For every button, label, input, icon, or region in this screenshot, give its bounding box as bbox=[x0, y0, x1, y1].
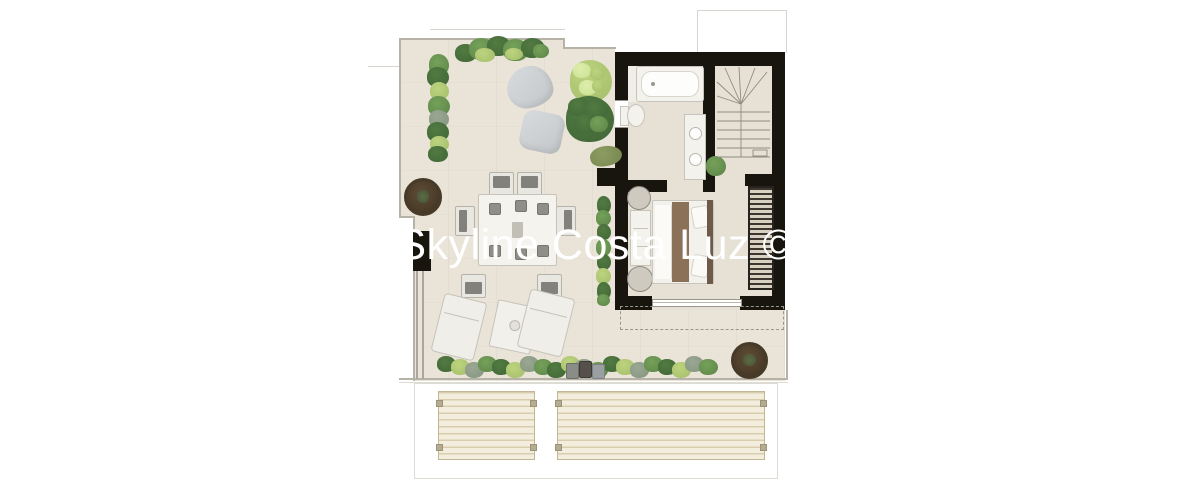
plant-blob bbox=[590, 67, 605, 80]
pergola-bracket bbox=[555, 400, 562, 407]
watermark-text: Skyline Costa Luz © bbox=[395, 224, 797, 267]
bathtub bbox=[636, 66, 704, 102]
small-planter-pots bbox=[566, 361, 606, 378]
pergola-bracket bbox=[436, 400, 443, 407]
roof-overhang-dashline bbox=[620, 306, 784, 330]
wardrobe-stool-bottom bbox=[627, 266, 653, 292]
pergola-bracket bbox=[760, 400, 767, 407]
dining-chair bbox=[489, 172, 514, 196]
place-setting bbox=[515, 200, 527, 212]
neighbor-outline-right bbox=[786, 10, 787, 53]
wardrobe-stool-top bbox=[627, 186, 651, 210]
pergola-bracket bbox=[530, 444, 537, 451]
lounger-fold-line bbox=[444, 312, 479, 322]
plant-blob bbox=[573, 63, 591, 78]
planter-pot bbox=[592, 364, 605, 379]
chair-cushion bbox=[493, 176, 510, 188]
planter-pot bbox=[579, 361, 592, 378]
planter-pot bbox=[566, 363, 579, 379]
sink bbox=[689, 153, 702, 166]
neighbor-outline-top bbox=[697, 10, 787, 11]
vanity bbox=[684, 114, 706, 180]
pergola-bracket bbox=[530, 400, 537, 407]
terrace-edge-top2 bbox=[563, 47, 616, 49]
planter-foliage bbox=[417, 190, 430, 203]
plant-blob bbox=[592, 80, 605, 92]
pergola-bracket bbox=[555, 444, 562, 451]
building-outline-top bbox=[430, 29, 565, 30]
left-planter-strip bbox=[427, 54, 451, 162]
plant-blob bbox=[597, 294, 610, 306]
lounger-fold-line bbox=[530, 308, 567, 318]
pergola-bracket bbox=[760, 444, 767, 451]
top-hedge bbox=[455, 36, 550, 66]
planter-foliage bbox=[743, 354, 755, 366]
terrace-edge-right bbox=[786, 310, 788, 380]
dining-chair bbox=[461, 274, 486, 298]
bean-bag-2 bbox=[517, 108, 566, 156]
staircase bbox=[715, 66, 772, 166]
wall-stair-bottom bbox=[745, 174, 772, 186]
place-setting bbox=[489, 203, 501, 215]
chair-cushion bbox=[465, 282, 482, 294]
plant-blob bbox=[505, 48, 523, 60]
pergola-panel-2 bbox=[557, 391, 765, 460]
plant-blob bbox=[533, 44, 549, 58]
chair-cushion bbox=[521, 176, 538, 188]
building-outline-side bbox=[368, 66, 400, 67]
plant-blob bbox=[428, 146, 448, 162]
pergola-panel-1 bbox=[438, 391, 535, 460]
balustrade bbox=[416, 271, 424, 379]
dark-green-bush bbox=[566, 96, 614, 142]
door-glass-line bbox=[653, 302, 741, 303]
round-planter-bottom bbox=[731, 342, 768, 379]
toilet-bowl bbox=[627, 104, 645, 127]
wall-top bbox=[615, 52, 785, 66]
plant-blob bbox=[590, 116, 608, 132]
plant-blob bbox=[699, 359, 718, 375]
neighbor-outline-left bbox=[697, 10, 698, 53]
bathtub-drain bbox=[651, 82, 655, 86]
dining-chair bbox=[517, 172, 542, 196]
sink bbox=[689, 127, 702, 140]
bathtub-basin bbox=[641, 71, 699, 97]
round-planter-top bbox=[404, 178, 442, 216]
place-setting bbox=[537, 203, 549, 215]
terrace-edge-left bbox=[399, 38, 401, 218]
floor-plan-page: Skyline Costa Luz © bbox=[0, 0, 1200, 504]
pergola-bracket bbox=[436, 444, 443, 451]
plant-blob bbox=[475, 48, 495, 62]
wall-stub bbox=[597, 168, 628, 186]
